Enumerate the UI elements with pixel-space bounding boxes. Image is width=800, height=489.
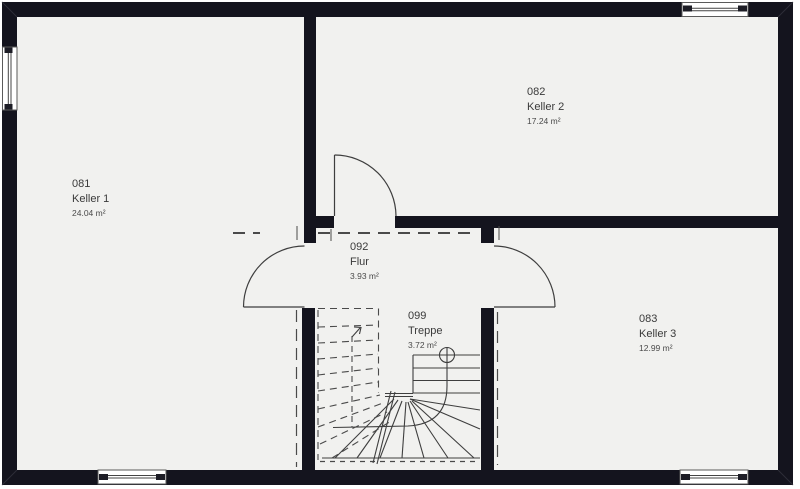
room-area: 12.99 m² (639, 342, 676, 355)
room-label-flur: 092 Flur 3.93 m² (350, 240, 379, 283)
wall-keller2-bottom (395, 216, 778, 228)
wall-keller1-keller2 (304, 17, 316, 243)
room-area: 17.24 m² (527, 115, 564, 128)
room-label-keller-1: 081 Keller 1 24.04 m² (72, 177, 109, 220)
room-name: Keller 1 (72, 192, 109, 207)
room-number: 092 (350, 240, 379, 255)
room-label-keller-2: 082 Keller 2 17.24 m² (527, 85, 564, 128)
room-number: 082 (527, 85, 564, 100)
window-bottom-wall-right (680, 470, 748, 484)
room-name: Treppe (408, 324, 442, 339)
room-number: 081 (72, 177, 109, 192)
room-area: 3.93 m² (350, 270, 379, 283)
room-name: Flur (350, 255, 379, 270)
room-number: 099 (408, 309, 442, 324)
window-left-wall (3, 47, 18, 110)
room-area: 24.04 m² (72, 207, 109, 220)
room-area: 3.72 m² (408, 339, 442, 352)
window-top-wall (682, 3, 748, 17)
window-bottom-wall-left (98, 470, 166, 484)
room-label-treppe: 099 Treppe 3.72 m² (408, 309, 442, 352)
room-name: Keller 2 (527, 100, 564, 115)
floor-area (17, 17, 778, 470)
wall-flur-keller3-stub (481, 216, 494, 243)
wall-stairwell-left (302, 308, 315, 470)
floor-plan: 081 Keller 1 24.04 m² 082 Keller 2 17.24… (0, 0, 800, 489)
wall-stairwell-right (481, 308, 494, 470)
room-label-keller-3: 083 Keller 3 12.99 m² (639, 312, 676, 355)
room-number: 083 (639, 312, 676, 327)
room-name: Keller 3 (639, 327, 676, 342)
floor-plan-drawing (0, 0, 800, 489)
wall-flur-top-stub (316, 216, 334, 228)
